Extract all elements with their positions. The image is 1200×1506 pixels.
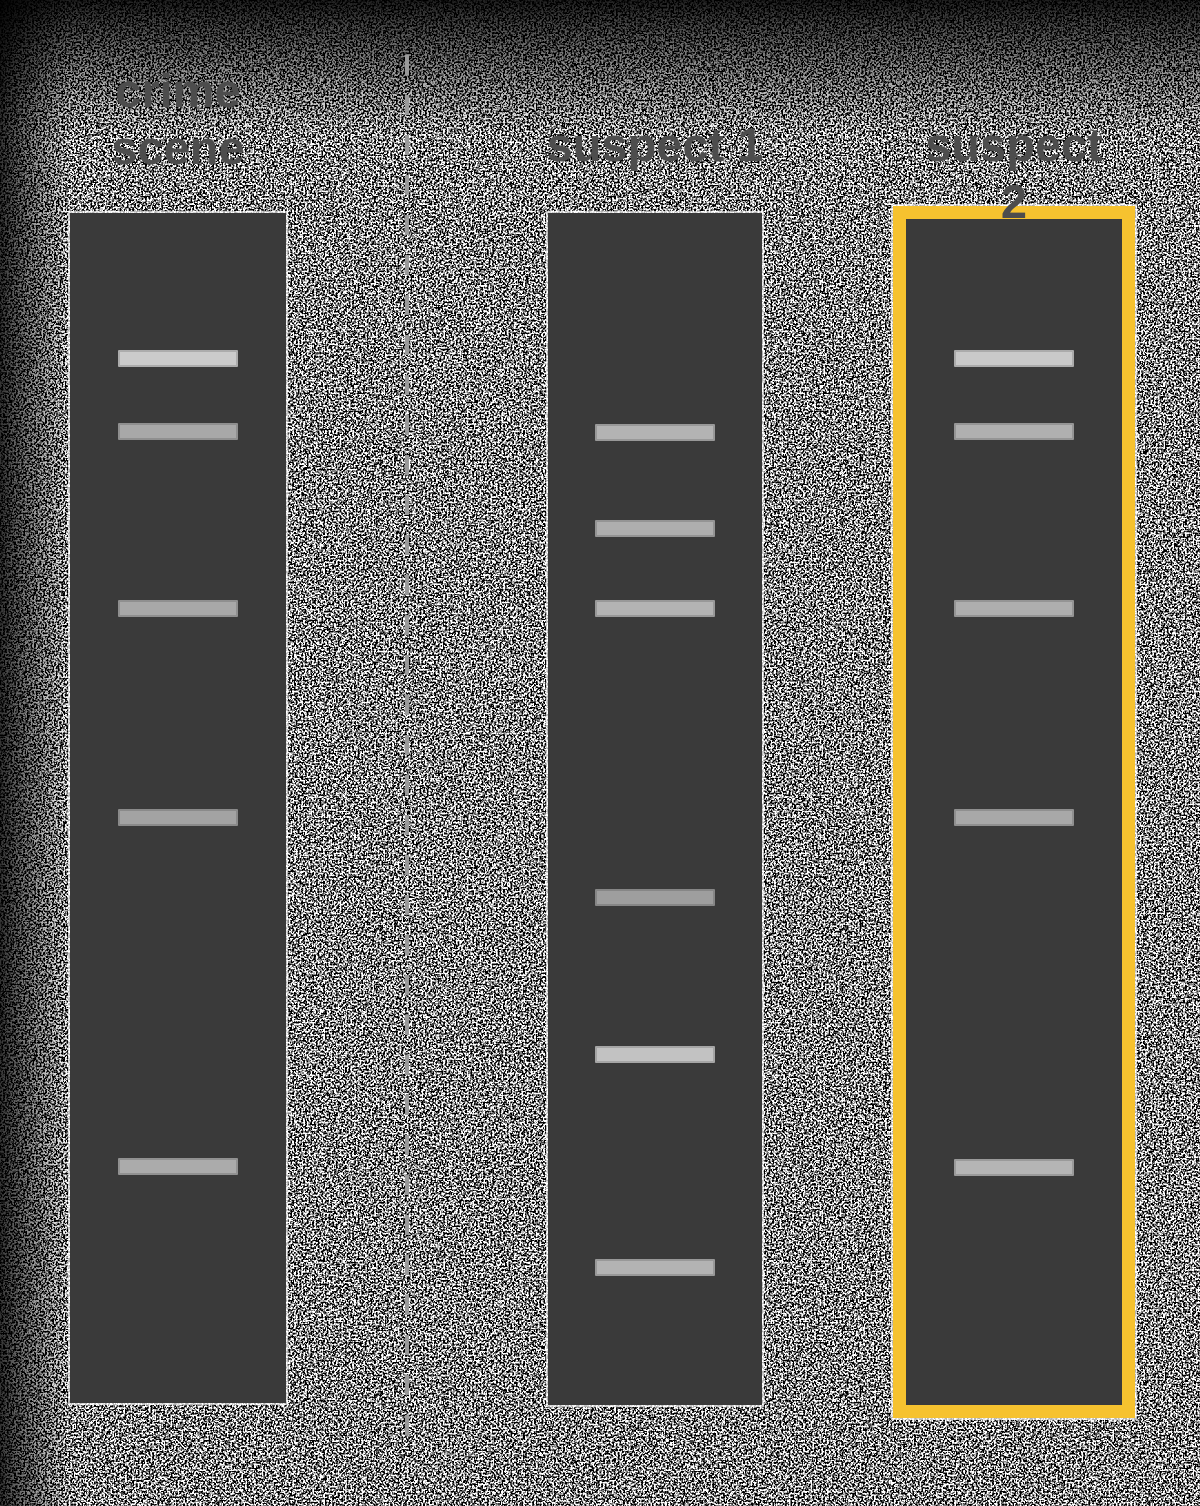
lane-label-suspect-1: suspect 1 [547, 116, 764, 173]
dna-band [118, 423, 238, 440]
gel-lane-suspect-1 [548, 213, 762, 1405]
dna-band [118, 1158, 238, 1175]
dna-band [954, 423, 1074, 440]
dna-band [595, 600, 715, 617]
dna-band [118, 809, 238, 826]
gel-lane-suspect-2 [906, 219, 1122, 1405]
dna-band [954, 1159, 1074, 1176]
dna-band [954, 600, 1074, 617]
gel-figure: crime scenesuspect 1suspect 2 [0, 0, 1200, 1506]
dna-band [118, 600, 238, 617]
lane-label-crime-scene: crime scene [111, 62, 244, 176]
dna-band [954, 350, 1074, 367]
lane-divider-dashed-line [405, 55, 409, 1445]
dna-band [595, 1259, 715, 1276]
dna-band [595, 520, 715, 537]
dna-band [954, 809, 1074, 826]
gel-lane-crime-scene [70, 213, 286, 1403]
dna-band [595, 889, 715, 906]
lane-label-suspect-2: suspect 2 [921, 116, 1107, 230]
dna-band [595, 424, 715, 441]
dna-band [118, 350, 238, 367]
dna-band [595, 1046, 715, 1063]
